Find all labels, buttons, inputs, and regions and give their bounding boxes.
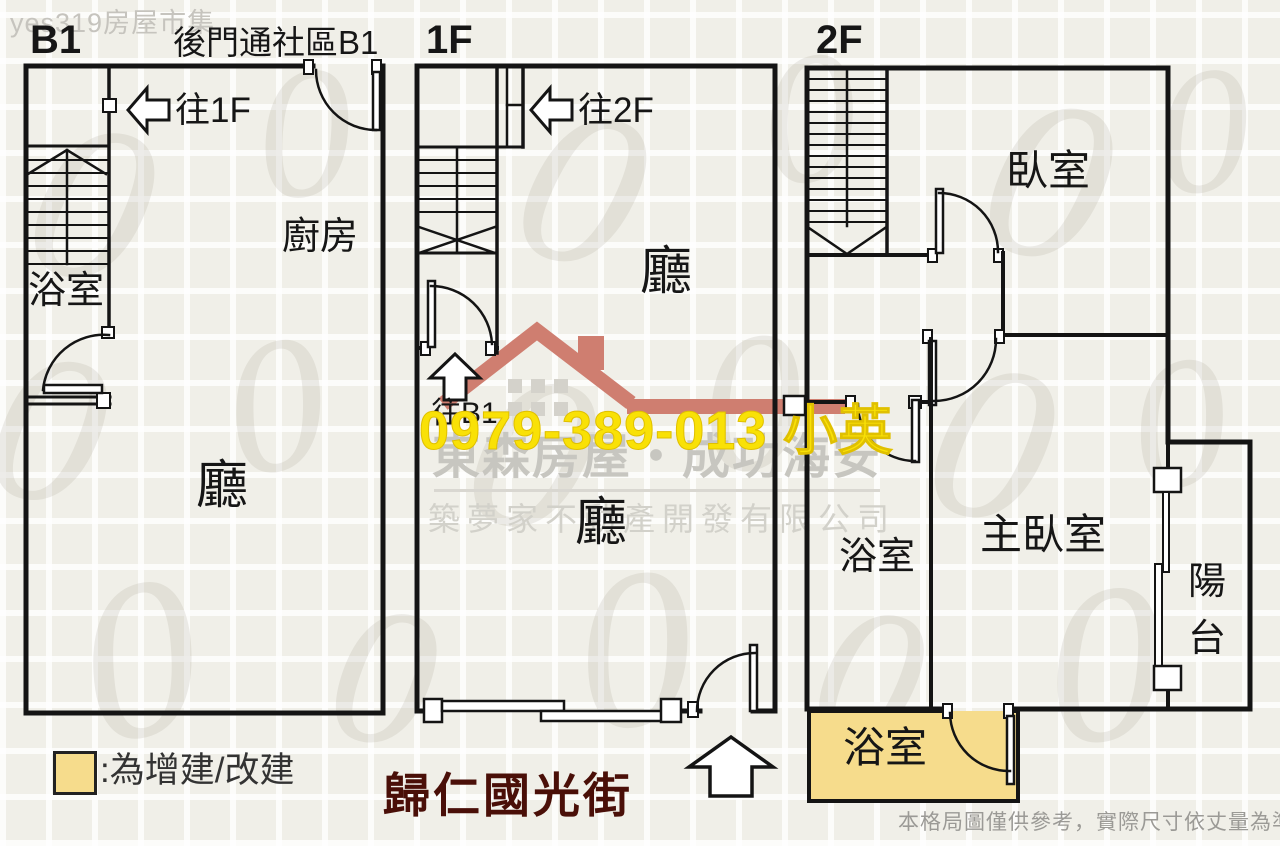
- f2-balcony-label: 陽台: [1188, 554, 1230, 668]
- f1-entry-door: [688, 645, 757, 717]
- disclaimer-text: 本格局圖僅供參考，實際尺寸依丈量為準: [898, 812, 1280, 833]
- b1-back-door: [304, 60, 381, 130]
- b1-kitchen-label: 廚房: [282, 218, 358, 256]
- entrance-arrow-icon: [689, 737, 773, 796]
- f1-hall-front-label: 廳: [640, 246, 692, 298]
- f1-plan: [417, 66, 805, 722]
- b1-plan: [26, 60, 383, 713]
- f2-master-door: [923, 330, 1004, 405]
- f2-master-bedroom-label: 主臥室: [980, 514, 1106, 556]
- street-name-label: 歸仁國光街: [383, 772, 633, 819]
- legend-label: :為增建/改建: [100, 753, 294, 788]
- b1-stair-direction-label: 往1F: [175, 93, 251, 128]
- f2-balcony-window: [1154, 442, 1181, 709]
- b1-floor-label: B1: [30, 20, 81, 60]
- f2-stairs: [807, 68, 887, 255]
- f1-hall-back-label: 廳: [575, 497, 627, 549]
- b1-to-1f-arrow-icon: [128, 88, 169, 132]
- f1-to-b1-arrow-icon: [430, 354, 480, 400]
- f1-to-2f-arrow-icon: [531, 88, 572, 132]
- b1-back-door-note: 後門通社區B1: [173, 26, 378, 59]
- legend-addition-swatch: [53, 751, 97, 795]
- f1-floor-label: 1F: [426, 20, 473, 60]
- b1-landing-jamb: [103, 99, 116, 112]
- b1-bath-door: [26, 327, 114, 408]
- f1-outer-walls: [417, 66, 775, 711]
- f1-sliding-window: [424, 699, 681, 722]
- f2-floor-label: 2F: [816, 20, 863, 60]
- phone-watermark: 0979-389-013 小英: [419, 404, 893, 458]
- f1-stair-up-label: 往2F: [578, 93, 654, 128]
- b1-bath-label: 浴室: [28, 272, 104, 310]
- b1-hall-label: 廳: [196, 460, 248, 512]
- floorplan-page: 0 0 0 0 0 0 0 0 0 0 0 0 0 0 0 0 0 東森房屋・成…: [0, 0, 1280, 846]
- f2-bedroom-label: 臥室: [1006, 150, 1090, 192]
- f2-bath-addition-label: 浴室: [843, 727, 927, 769]
- f1-stairs: [417, 147, 497, 253]
- f2-bedroom-door: [928, 189, 1003, 262]
- f1-stair-door: [417, 281, 497, 355]
- f2-bath-label: 浴室: [839, 538, 915, 576]
- b1-stairs: [26, 146, 109, 264]
